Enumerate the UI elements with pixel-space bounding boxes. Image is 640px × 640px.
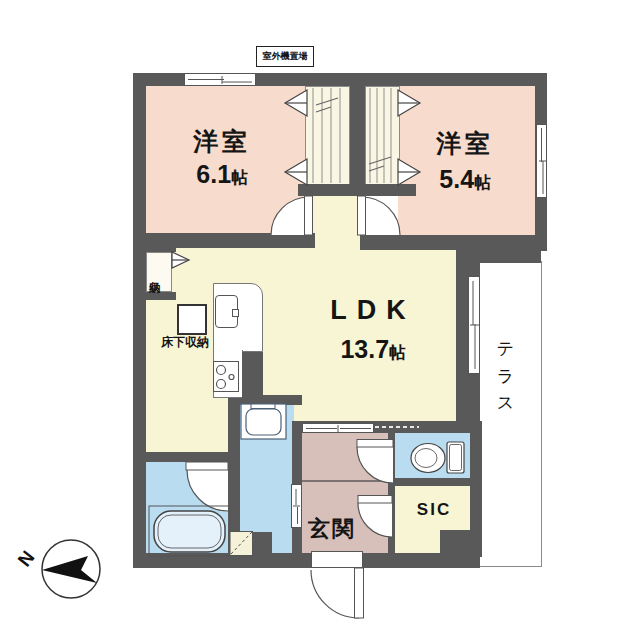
compass-arrow [42, 556, 97, 583]
label-genkan: 玄関 [300, 517, 364, 540]
label-bedroom2-size: 5.4帖 [405, 166, 525, 192]
wall-washroom-stub [252, 532, 272, 557]
wall-toilet-west [388, 431, 395, 553]
entrance-door-frame [311, 551, 363, 568]
label-bedroom1-name: 洋室 [162, 128, 282, 154]
wall-closet-bottom [298, 184, 416, 196]
window-ldk-terrace [468, 276, 480, 374]
bedroom-vestibule [307, 196, 358, 237]
wall-closet-niche-bottom [140, 292, 176, 300]
outdoor-unit-box: 室外機置場 [256, 46, 314, 67]
wall-kitchen-stub [242, 352, 263, 398]
window-bedroom1-top [184, 73, 256, 86]
floor-plan: 室外機置場 [0, 0, 640, 640]
sliding-door-ldk-hall [302, 423, 374, 433]
room-bathroom [146, 460, 230, 555]
label-floor-storage: 床下収納 [145, 336, 225, 349]
wall-closet-niche-top [140, 244, 176, 252]
wall-bathroom-north [140, 452, 230, 462]
window-bedroom2-right [536, 124, 547, 198]
compass-circle [42, 540, 100, 598]
door-bedroom-2 [358, 196, 401, 235]
wall-outer-bottom [133, 553, 480, 568]
closet-left [305, 86, 350, 186]
door-entrance [311, 568, 364, 618]
room-toilet [393, 431, 472, 480]
label-ldk-size: 13.7帖 [298, 336, 448, 362]
kitchen-stove [213, 361, 239, 392]
inspection-hatch [229, 531, 253, 556]
wall-toilet-sic-divider [393, 478, 472, 486]
label-bedroom1-size: 6.1帖 [162, 161, 282, 187]
room-bedroom-2 [398, 86, 537, 237]
label-sic: SIC [408, 501, 460, 519]
label-closet: 収納 [148, 256, 160, 290]
genkan-step-line [302, 480, 388, 482]
kitchen-sink-faucet [232, 309, 239, 317]
compass-north-label: N [14, 547, 39, 571]
label-bedroom2-name: 洋室 [405, 130, 525, 156]
outdoor-unit-label: 室外機置場 [263, 50, 308, 63]
label-ldk-name: LDK [298, 296, 448, 324]
wall-outer-left [133, 73, 146, 568]
compass: N [14, 540, 100, 598]
label-terrace: テラス [496, 310, 514, 435]
wall-bedroom2-south [360, 235, 547, 250]
wall-sic-notch [440, 530, 480, 566]
wall-closet-divider [350, 85, 365, 196]
floor-storage-hatch [177, 304, 207, 335]
closet-right [365, 86, 400, 186]
